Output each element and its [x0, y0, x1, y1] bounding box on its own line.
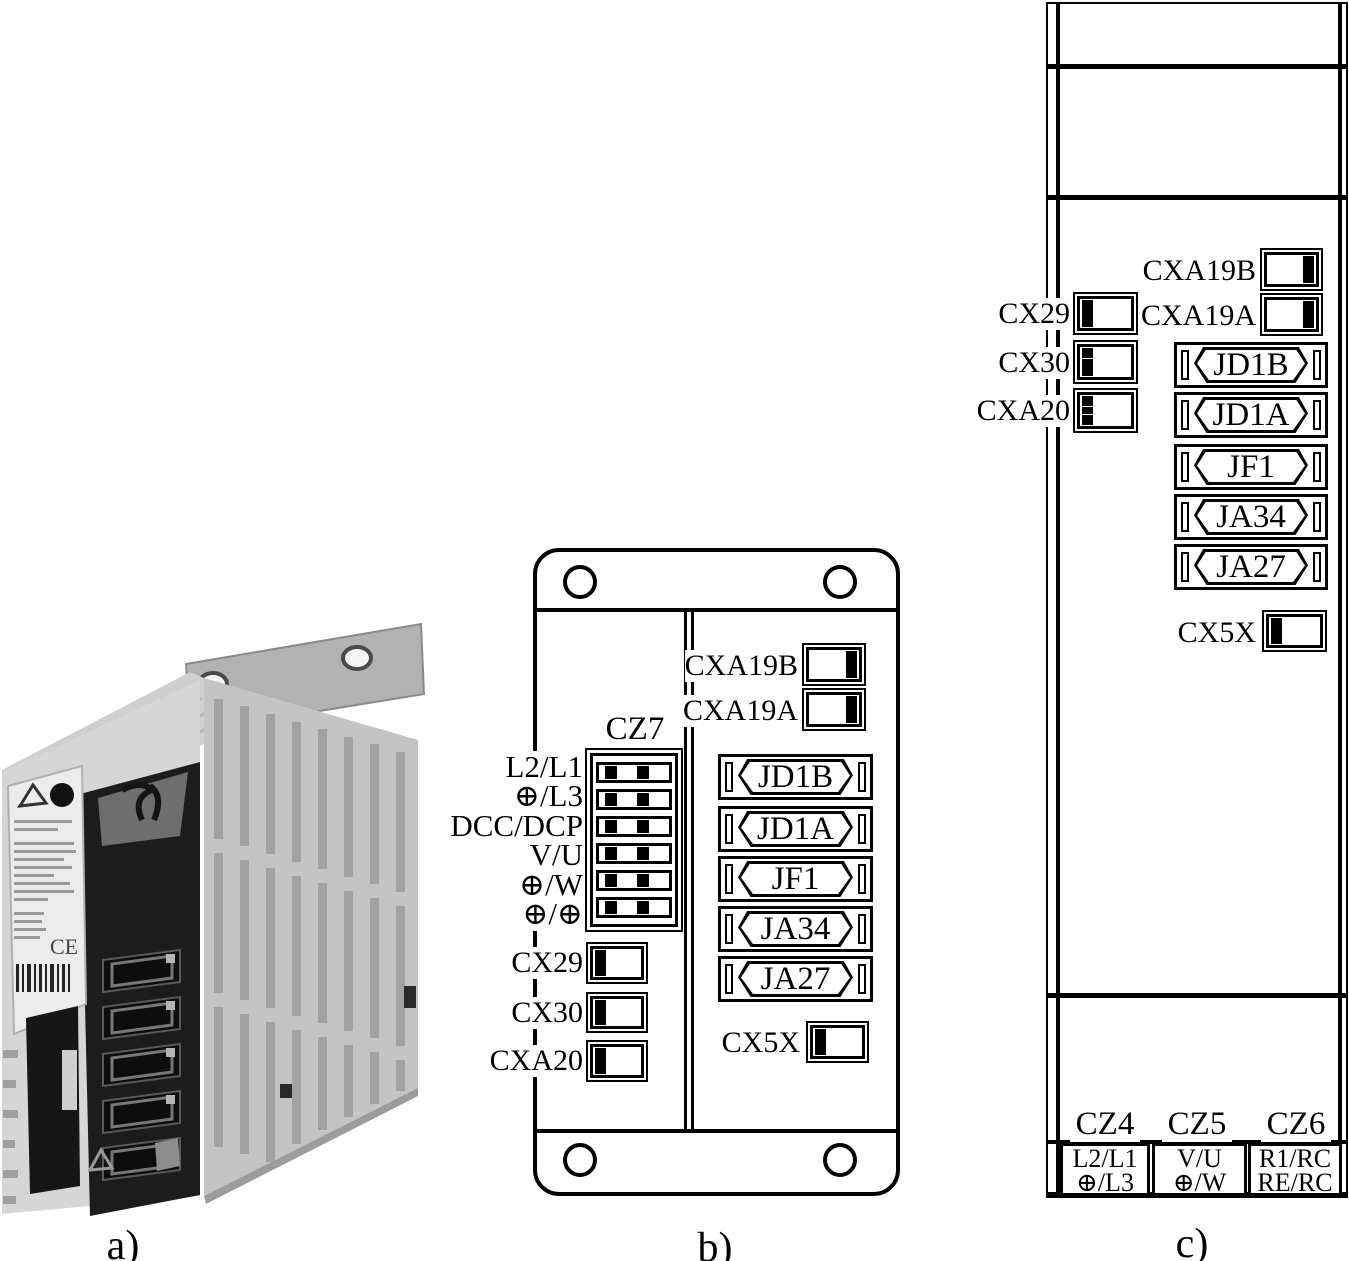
cz7-label: CZ7 [600, 712, 670, 747]
photo-button [155, 1138, 180, 1171]
terminal-row [596, 843, 672, 864]
dsub-flange [858, 914, 866, 944]
dsub-flange [725, 762, 733, 792]
mounting-hole [563, 1143, 597, 1177]
connector-label: JA27 [1216, 549, 1286, 586]
cxa19a-label: CXA19A [1141, 300, 1256, 332]
cxa19a-label: CXA19A [683, 695, 798, 727]
connector-label: JA34 [761, 911, 831, 948]
connector-ja27: JA27 [718, 956, 873, 1002]
panel-b-center-divider [691, 610, 694, 1131]
panel-c-divider [1046, 195, 1348, 200]
terminal-row-label: ⊕/⊕ [522, 898, 583, 931]
panel-c-divider [1046, 64, 1348, 69]
connector-jf1: JF1 [1174, 444, 1328, 490]
terminal-row [596, 816, 672, 837]
caption-a: a) [88, 1222, 158, 1261]
connector-cx29 [586, 942, 648, 984]
connector-cxa19a [802, 688, 866, 731]
connector-cx30 [586, 992, 648, 1033]
panel-c-outline [1046, 2, 1348, 1198]
connector-jd1a: JD1A [718, 806, 873, 852]
caption-b: b) [680, 1224, 750, 1261]
cx29-label: CX29 [511, 947, 583, 979]
dsub-flange [858, 814, 866, 844]
cz5-label: CZ5 [1162, 1107, 1232, 1142]
dsub-flange [1181, 400, 1189, 430]
cz4-label: CZ4 [1070, 1107, 1140, 1142]
dsub-flange [858, 864, 866, 894]
cxa20-label: CXA20 [977, 395, 1070, 427]
dsub-flange [1313, 502, 1321, 532]
connector-label: JD1B [758, 759, 833, 796]
ce-mark: CE [50, 934, 78, 959]
dsub-flange [1181, 552, 1189, 582]
terminal-cell-cz6: R1/RC RE/RC [1248, 1143, 1342, 1196]
dsub-flange [858, 964, 866, 994]
cz6-label: CZ6 [1261, 1107, 1331, 1142]
panel-c-right-border [1338, 3, 1342, 1196]
connector-jf1: JF1 [718, 856, 873, 902]
dsub-flange [1181, 502, 1189, 532]
mounting-hole [563, 565, 597, 599]
terminal-cell-cz5: V/U ⊕/W [1152, 1143, 1247, 1196]
dsub-flange [1181, 452, 1189, 482]
connector-label: JF1 [1227, 449, 1275, 486]
caption-c: c) [1157, 1220, 1227, 1261]
connector-jd1b: JD1B [718, 754, 873, 800]
cx5x-label: CX5X [1178, 617, 1256, 649]
connector-label: JF1 [772, 861, 820, 898]
connector-cxa20 [1073, 388, 1138, 433]
connector-label: JA34 [1216, 499, 1286, 536]
connector-ja34: JA34 [718, 906, 873, 952]
panel-c-left-border [1056, 3, 1060, 1196]
connector-cxa20 [586, 1040, 648, 1082]
connector-label: JD1A [1212, 397, 1289, 434]
terminal-row [596, 897, 672, 918]
connector-label: JA27 [761, 961, 831, 998]
connector-label: JD1B [1213, 347, 1288, 384]
terminal-line: ⊕/W [1155, 1171, 1244, 1195]
connector-cx30 [1073, 340, 1138, 384]
connector-cxa19b [1260, 248, 1323, 291]
dsub-flange [858, 762, 866, 792]
mounting-hole [823, 1143, 857, 1177]
figure-canvas: CE [0, 0, 1349, 1261]
terminal-line: ⊕/L3 [1063, 1171, 1147, 1195]
connector-ja34: JA34 [1174, 494, 1328, 540]
terminal-line: RE/RC [1251, 1171, 1339, 1195]
dsub-flange [725, 864, 733, 894]
connector-cx5x [806, 1021, 869, 1063]
dsub-flange [1313, 350, 1321, 380]
terminal-row [596, 870, 672, 891]
dsub-flange [725, 964, 733, 994]
cxa19b-label: CXA19B [1143, 255, 1256, 287]
connector-ja27: JA27 [1174, 544, 1328, 590]
connector-cxa19b [802, 643, 866, 686]
connector-jd1a: JD1A [1174, 392, 1328, 438]
dsub-flange [1313, 552, 1321, 582]
connector-cx5x [1262, 610, 1327, 652]
connector-cxa19a [1260, 293, 1323, 336]
panel-b-center-divider [684, 610, 687, 1131]
terminal-block-cz7 [585, 748, 683, 932]
cx5x-label: CX5X [722, 1027, 800, 1059]
panel-b-top-divider [535, 608, 898, 612]
cx30-label: CX30 [511, 997, 583, 1029]
cxa19b-label: CXA19B [685, 650, 798, 682]
panel-b-bottom-divider [535, 1129, 898, 1133]
flange-hole [343, 647, 371, 669]
connector-jd1b: JD1B [1174, 342, 1328, 388]
photo-id-label: CE [8, 766, 86, 1034]
mounting-hole [823, 565, 857, 599]
connector-label: JD1A [757, 811, 834, 848]
photo-side-face [204, 678, 418, 1204]
terminal-row [596, 789, 672, 810]
cx29-label: CX29 [998, 298, 1070, 330]
dsub-flange [725, 914, 733, 944]
servo-drive-photo: CE [0, 598, 430, 1218]
cx30-label: CX30 [998, 347, 1070, 379]
dsub-flange [1313, 400, 1321, 430]
dsub-flange [1313, 452, 1321, 482]
cxa20-label: CXA20 [490, 1045, 583, 1077]
connector-cx29 [1073, 292, 1138, 335]
terminal-cell-cz4: L2/L1 ⊕/L3 [1060, 1143, 1150, 1196]
panel-c-divider [1046, 993, 1348, 998]
dsub-flange [1181, 350, 1189, 380]
terminal-row [596, 762, 672, 783]
dsub-flange [725, 814, 733, 844]
